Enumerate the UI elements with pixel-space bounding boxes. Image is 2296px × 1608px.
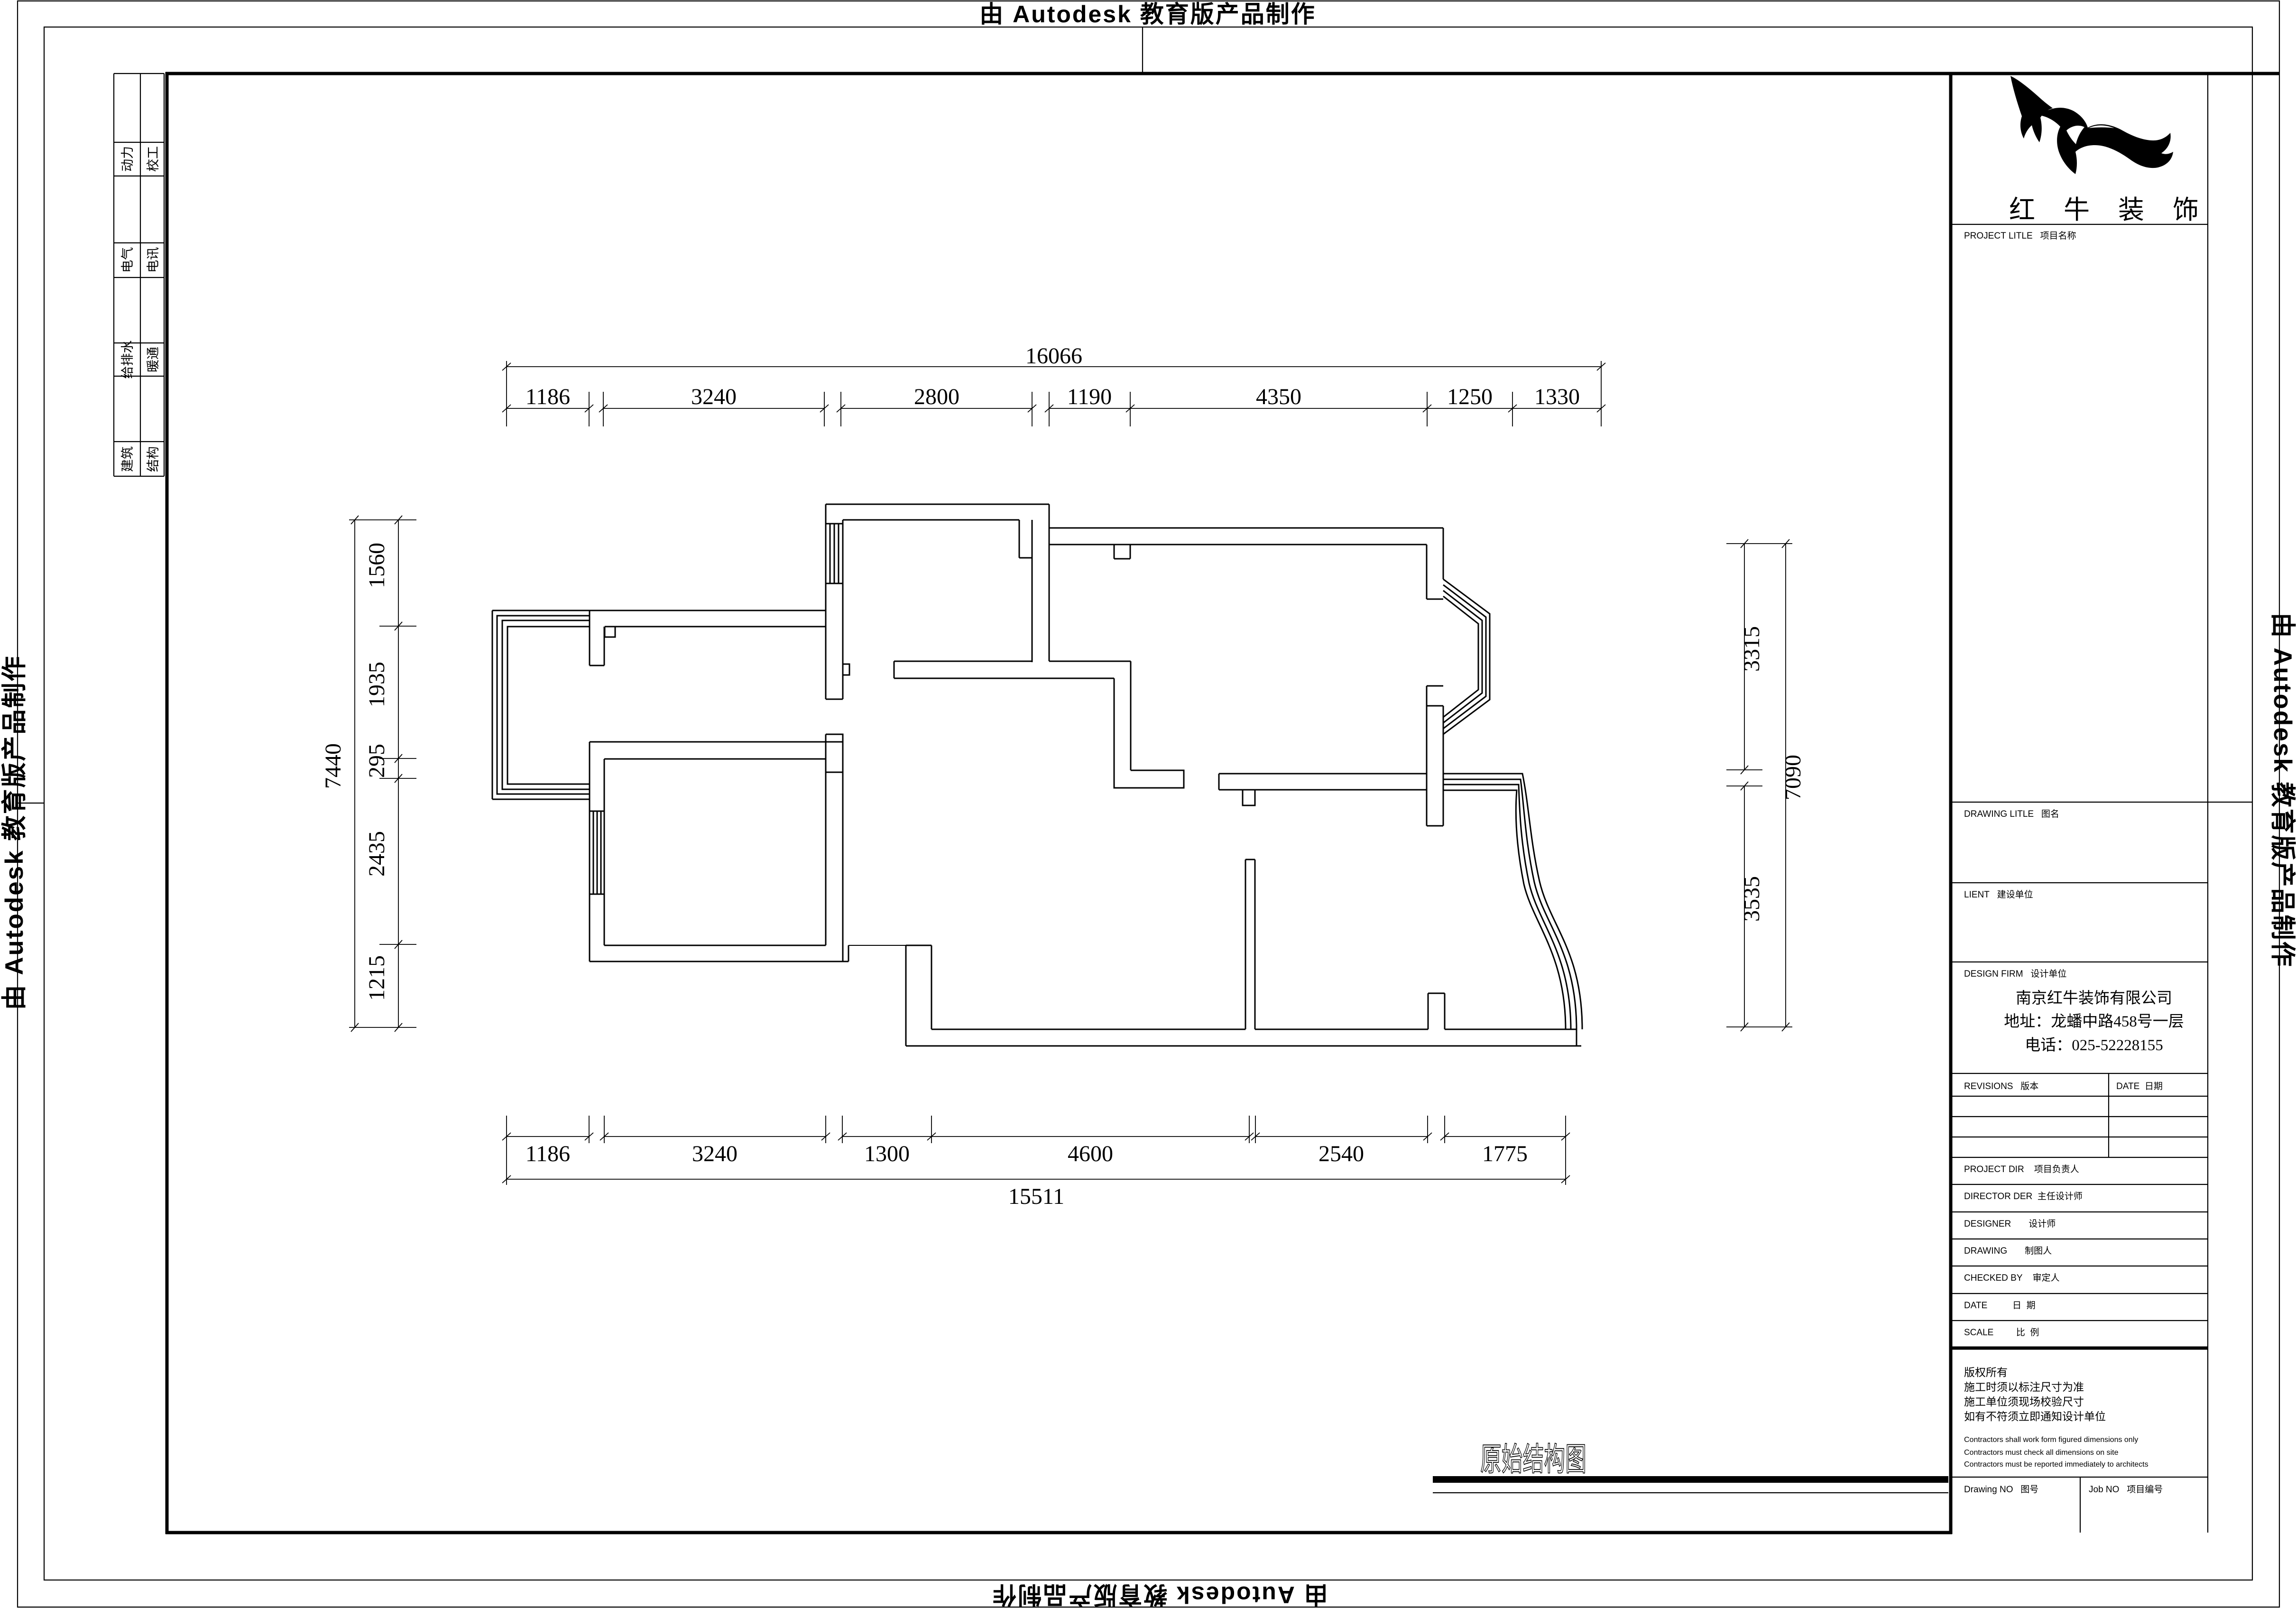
svg-text:校工: 校工 xyxy=(146,146,160,172)
svg-text:DRAWING LITLE 图名: DRAWING LITLE 图名 xyxy=(1964,809,2059,819)
svg-text:1250: 1250 xyxy=(1447,384,1493,409)
svg-text:1560: 1560 xyxy=(364,543,389,588)
svg-text:LIENT 建设单位: LIENT 建设单位 xyxy=(1964,889,2033,900)
svg-text:如有不符须立即通知设计单位: 如有不符须立即通知设计单位 xyxy=(1964,1410,2106,1423)
svg-text:Job NO 项目编号: Job NO 项目编号 xyxy=(2089,1484,2163,1495)
svg-text:2540: 2540 xyxy=(1319,1141,1364,1166)
svg-text:原始结构图: 原始结构图 xyxy=(1480,1442,1586,1478)
svg-text:版权所有: 版权所有 xyxy=(1964,1366,2008,1378)
svg-text:1330: 1330 xyxy=(1534,384,1580,409)
svg-text:1186: 1186 xyxy=(526,384,570,409)
svg-text:施工时须以标注尺寸为准: 施工时须以标注尺寸为准 xyxy=(1964,1381,2084,1393)
svg-text:由 Autodesk 教育版产品制作: 由 Autodesk 教育版产品制作 xyxy=(991,1581,1328,1608)
svg-text:SCALE 比 例: SCALE 比 例 xyxy=(1964,1327,2039,1338)
svg-text:红牛装饰: 红牛装饰 xyxy=(2009,195,2227,224)
svg-text:1300: 1300 xyxy=(864,1141,910,1166)
svg-text:暖通: 暖通 xyxy=(146,347,160,372)
svg-text:DESIGNER 设计师: DESIGNER 设计师 xyxy=(1964,1219,2056,1229)
svg-text:CHECKED BY 审定人: CHECKED BY 审定人 xyxy=(1964,1273,2060,1283)
svg-text:PROJECT DIR 项目负责人: PROJECT DIR 项目负责人 xyxy=(1964,1164,2079,1174)
svg-text:DATE 日 期: DATE 日 期 xyxy=(1964,1300,2036,1311)
svg-text:3240: 3240 xyxy=(691,384,737,409)
svg-text:295: 295 xyxy=(364,744,389,778)
svg-text:电讯: 电讯 xyxy=(146,247,160,273)
svg-text:由 Autodesk 教育版产品制作: 由 Autodesk 教育版产品制作 xyxy=(0,655,28,1010)
svg-text:由 Autodesk 教育版产品制作: 由 Autodesk 教育版产品制作 xyxy=(979,1,1316,28)
svg-text:DIRECTOR DER 主任设计师: DIRECTOR DER 主任设计师 xyxy=(1964,1191,2083,1201)
svg-text:施工单位须现场校验尺寸: 施工单位须现场校验尺寸 xyxy=(1964,1395,2084,1408)
svg-text:地址：龙蟠中路458号一层: 地址：龙蟠中路458号一层 xyxy=(2004,1013,2184,1030)
svg-text:1190: 1190 xyxy=(1067,384,1112,409)
svg-text:4600: 4600 xyxy=(1068,1141,1113,1166)
svg-text:16066: 16066 xyxy=(1025,343,1082,369)
svg-text:南京红牛装饰有限公司: 南京红牛装饰有限公司 xyxy=(2016,989,2172,1007)
svg-text:Contractors shall work form fi: Contractors shall work form figured dime… xyxy=(1964,1436,2138,1444)
svg-text:PROJECT LITLE 项目名称: PROJECT LITLE 项目名称 xyxy=(1964,231,2076,241)
svg-text:2800: 2800 xyxy=(914,384,959,409)
svg-text:电话：025-52228155: 电话：025-52228155 xyxy=(2025,1036,2163,1054)
svg-text:2435: 2435 xyxy=(364,831,389,877)
svg-text:Drawing NO 图号: Drawing NO 图号 xyxy=(1964,1485,2038,1495)
svg-text:1935: 1935 xyxy=(364,662,389,707)
svg-text:3315: 3315 xyxy=(1739,626,1764,672)
svg-text:4350: 4350 xyxy=(1256,384,1301,409)
svg-text:1775: 1775 xyxy=(1482,1141,1528,1166)
svg-text:电气: 电气 xyxy=(120,247,135,273)
svg-text:DESIGN FIRM 设计单位: DESIGN FIRM 设计单位 xyxy=(1964,969,2066,979)
svg-text:Contractors must check all dim: Contractors must check all dimensions on… xyxy=(1964,1449,2119,1457)
svg-text:Contractors must be reported i: Contractors must be reported immediately… xyxy=(1964,1460,2148,1469)
svg-text:15511: 15511 xyxy=(1008,1184,1064,1209)
svg-text:动力: 动力 xyxy=(120,146,135,172)
svg-text:由 Autodesk 教育版产品制作: 由 Autodesk 教育版产品制作 xyxy=(2268,613,2296,968)
svg-text:7440: 7440 xyxy=(321,743,346,789)
svg-text:建筑: 建筑 xyxy=(120,446,135,472)
svg-text:7090: 7090 xyxy=(1780,755,1806,800)
svg-text:1215: 1215 xyxy=(364,955,389,1001)
svg-text:结构: 结构 xyxy=(146,446,160,472)
svg-text:REVISIONS 版本: REVISIONS 版本 xyxy=(1964,1081,2038,1091)
svg-text:DRAWING 制图人: DRAWING 制图人 xyxy=(1964,1246,2052,1256)
svg-text:1186: 1186 xyxy=(526,1141,570,1166)
svg-text:给排水: 给排水 xyxy=(120,341,135,379)
svg-text:3240: 3240 xyxy=(692,1141,738,1166)
svg-text:DATE 日期: DATE 日期 xyxy=(2116,1081,2163,1091)
svg-text:3535: 3535 xyxy=(1739,876,1764,922)
